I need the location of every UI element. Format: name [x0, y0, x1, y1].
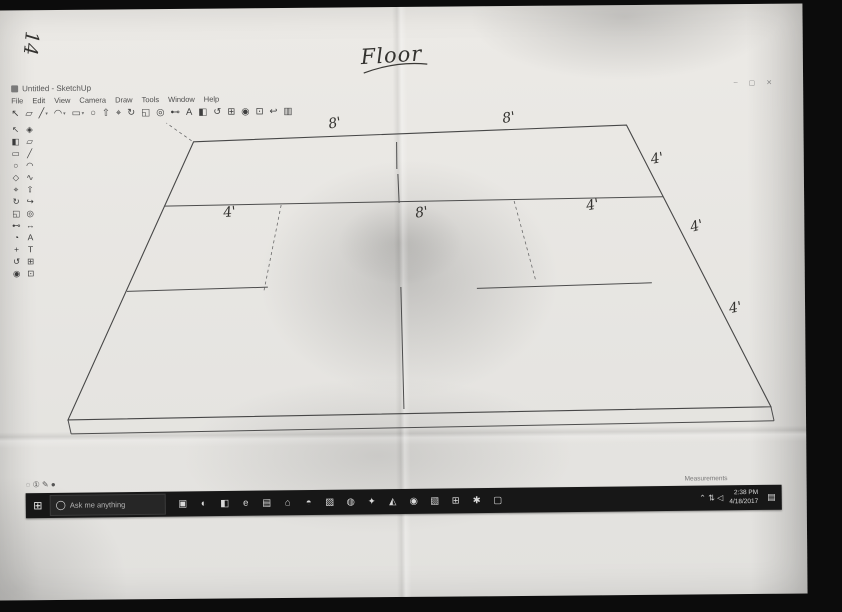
floor-model-drawing — [8, 116, 783, 479]
dimension-label: 8' — [501, 109, 516, 127]
grid-app-icon[interactable]: ⊞ — [449, 493, 463, 508]
orbit-icon[interactable]: ↺ — [11, 256, 23, 267]
action-center-icon[interactable]: ▤ — [764, 492, 779, 503]
rotate-icon[interactable]: ↻ — [10, 196, 22, 207]
monitor-app-icon[interactable]: ▢ — [491, 493, 505, 508]
handwritten-page-number: 14 — [19, 30, 43, 56]
volume-icon[interactable]: ◁ — [717, 493, 723, 502]
close-button[interactable]: ✕ — [766, 78, 772, 86]
offset-tool-icon[interactable]: ◎ — [156, 108, 164, 118]
photos-icon[interactable]: ▨ — [323, 495, 337, 510]
undo-icon[interactable]: ↩ — [269, 107, 277, 117]
maximize-button[interactable]: ▢ — [749, 78, 756, 86]
polygon-icon[interactable]: ◇ — [10, 172, 22, 183]
taskbar-app-icon-6[interactable]: ▧ — [428, 494, 442, 509]
follow-me-icon[interactable]: ↪ — [24, 196, 36, 207]
cortana-icon: ◯ — [56, 500, 66, 511]
task-view-button[interactable]: ▣ — [176, 496, 190, 511]
zoom-icon[interactable]: ◉ — [11, 268, 23, 279]
menu-help[interactable]: Help — [204, 95, 220, 104]
rotate-tool-icon[interactable]: ↻ — [127, 109, 135, 119]
taskbar-app-icon-4[interactable]: ✦ — [365, 494, 379, 509]
text-tool-icon[interactable]: A — [186, 108, 192, 118]
select-tool-icon[interactable]: ↖ — [11, 110, 19, 120]
menu-edit[interactable]: Edit — [32, 96, 45, 105]
move-tool-icon[interactable]: ⌖ — [116, 109, 121, 119]
zoom-tool-icon[interactable]: ◉ — [241, 108, 249, 118]
clock-time: 2:38 PM — [729, 489, 758, 498]
window-title: Untitled - SketchUp — [22, 84, 91, 94]
push-pull-icon[interactable]: ⇧ — [24, 184, 36, 195]
start-button[interactable]: ⊞ — [26, 499, 50, 512]
dropdown-arrow-icon[interactable]: ▾ — [63, 111, 66, 116]
help-status-icon[interactable]: ● — [51, 480, 56, 489]
3d-text-icon[interactable]: T — [24, 244, 36, 255]
drawing-area[interactable]: ↖◈◧▱▭╱○◠◇∿⌖⇧↻↪◱◎⊷↔◔A+T↺⊞◉⊡ 8'8'4'4'4'4'8… — [8, 116, 783, 479]
menu-view[interactable]: View — [54, 96, 70, 105]
move-icon[interactable]: ⌖ — [10, 184, 22, 195]
dimension-label: 4' — [649, 150, 664, 168]
scale-icon[interactable]: ◱ — [10, 208, 22, 219]
protractor-icon[interactable]: ◔ — [10, 232, 22, 243]
menu-window[interactable]: Window — [168, 95, 195, 104]
chrome-icon[interactable]: ◍ — [344, 495, 358, 510]
dimension-label: 8' — [414, 204, 429, 222]
freehand-icon[interactable]: ∿ — [24, 172, 36, 183]
search-placeholder: Ask me anything — [70, 500, 126, 510]
dimension-label: 8' — [327, 115, 342, 133]
pan-icon[interactable]: ⊞ — [25, 256, 37, 267]
eraser-icon[interactable]: ▱ — [24, 136, 36, 147]
tape-measure-tool-icon[interactable]: ⊷ — [170, 108, 180, 118]
circle-icon[interactable]: ○ — [10, 160, 22, 171]
text-icon[interactable]: A — [24, 232, 36, 243]
dimension-label: 4' — [585, 196, 600, 214]
cortana-search-box[interactable]: ◯ Ask me anything — [50, 494, 166, 516]
rectangle-tool-icon[interactable]: ▭▾ — [72, 109, 85, 119]
dropdown-arrow-icon[interactable]: ▾ — [82, 111, 85, 116]
menu-tools[interactable]: Tools — [142, 95, 160, 104]
paint-bucket-icon[interactable]: ◧ — [10, 136, 22, 147]
tray-icons: ⌃ ⇅ ◁ — [699, 493, 723, 502]
zoom-extents-tool-icon[interactable]: ⊡ — [256, 107, 264, 117]
minimize-button[interactable]: – — [734, 79, 738, 87]
line-icon[interactable]: ╱ — [24, 148, 36, 159]
menu-camera[interactable]: Camera — [79, 96, 106, 105]
scale-tool-icon[interactable]: ◱ — [141, 108, 150, 118]
select-tool-icon[interactable]: ↖ — [9, 124, 21, 135]
settings-icon[interactable]: ✱ — [470, 493, 484, 508]
zoom-extents-icon[interactable]: ⊡ — [25, 268, 37, 279]
window-controls: –▢✕ — [734, 78, 780, 86]
arc-tool-icon[interactable]: ◠▾ — [54, 109, 66, 119]
taskbar-app-icon-5[interactable]: ◉ — [407, 494, 421, 509]
sketchup-logo-icon — [11, 85, 18, 92]
model-info-icon[interactable]: ▥ — [283, 107, 292, 117]
geolocation-icon[interactable]: ◌ — [26, 480, 33, 489]
clock-date: 4/18/2017 — [729, 497, 758, 506]
taskbar-app-icon-2[interactable]: ◧ — [218, 496, 232, 511]
taskbar-app-icon-1[interactable]: ◐ — [197, 496, 211, 511]
circle-tool-icon[interactable]: ○ — [90, 109, 96, 119]
paint-bucket-tool-icon[interactable]: ◧ — [198, 108, 207, 118]
arc-icon[interactable]: ◠ — [24, 160, 36, 171]
measurements-label: Measurements — [685, 475, 728, 482]
pan-tool-icon[interactable]: ⊞ — [227, 108, 235, 118]
sketchup-icon[interactable]: ◭ — [386, 494, 400, 509]
line-tool-icon[interactable]: ╱▾ — [39, 109, 48, 119]
offset-icon[interactable]: ◎ — [24, 208, 36, 219]
taskbar-clock[interactable]: 2:38 PM 4/18/2017 — [729, 489, 758, 507]
orbit-tool-icon[interactable]: ↺ — [213, 108, 221, 118]
handwritten-sheet-title: Floor — [360, 41, 432, 75]
menu-file[interactable]: File — [11, 96, 23, 105]
dimension-label: 4' — [728, 299, 743, 317]
large-tool-set: ↖◈◧▱▭╱○◠◇∿⌖⇧↻↪◱◎⊷↔◔A+T↺⊞◉⊡ — [9, 124, 36, 279]
dimension-label: 4' — [222, 204, 236, 221]
dropdown-arrow-icon[interactable]: ▾ — [45, 112, 48, 117]
file-explorer-icon[interactable]: ▤ — [260, 495, 274, 510]
make-component-icon[interactable]: ◈ — [23, 124, 35, 135]
sketchup-window: Untitled - SketchUp –▢✕ FileEditViewCame… — [8, 76, 784, 493]
system-tray: ⌃ ⇅ ◁ 2:38 PM 4/18/2017 ▤ — [699, 488, 782, 506]
status-bar-icons: ◌ ① ✎ ● — [26, 480, 56, 489]
tape-measure-icon[interactable]: ⊷ — [10, 220, 22, 231]
rectangle-icon[interactable]: ▭ — [10, 148, 22, 159]
menu-draw[interactable]: Draw — [115, 95, 133, 104]
axes-icon[interactable]: + — [10, 244, 22, 255]
taskbar-app-icon-3[interactable]: ◓ — [302, 495, 316, 510]
taskbar-apps: ▣◐◧e▤⌂◓▨◍✦◭◉▧⊞✱▢ — [176, 493, 505, 512]
eraser-tool-icon[interactable]: ▱ — [25, 109, 32, 119]
photographed-paper: 14 Floor Untitled - SketchUp –▢✕ FileEdi… — [0, 3, 808, 600]
store-icon[interactable]: ⌂ — [281, 495, 295, 510]
edge-icon[interactable]: e — [239, 496, 253, 511]
push-pull-tool-icon[interactable]: ⇧ — [102, 109, 110, 119]
dimension-icon[interactable]: ↔ — [24, 220, 36, 231]
